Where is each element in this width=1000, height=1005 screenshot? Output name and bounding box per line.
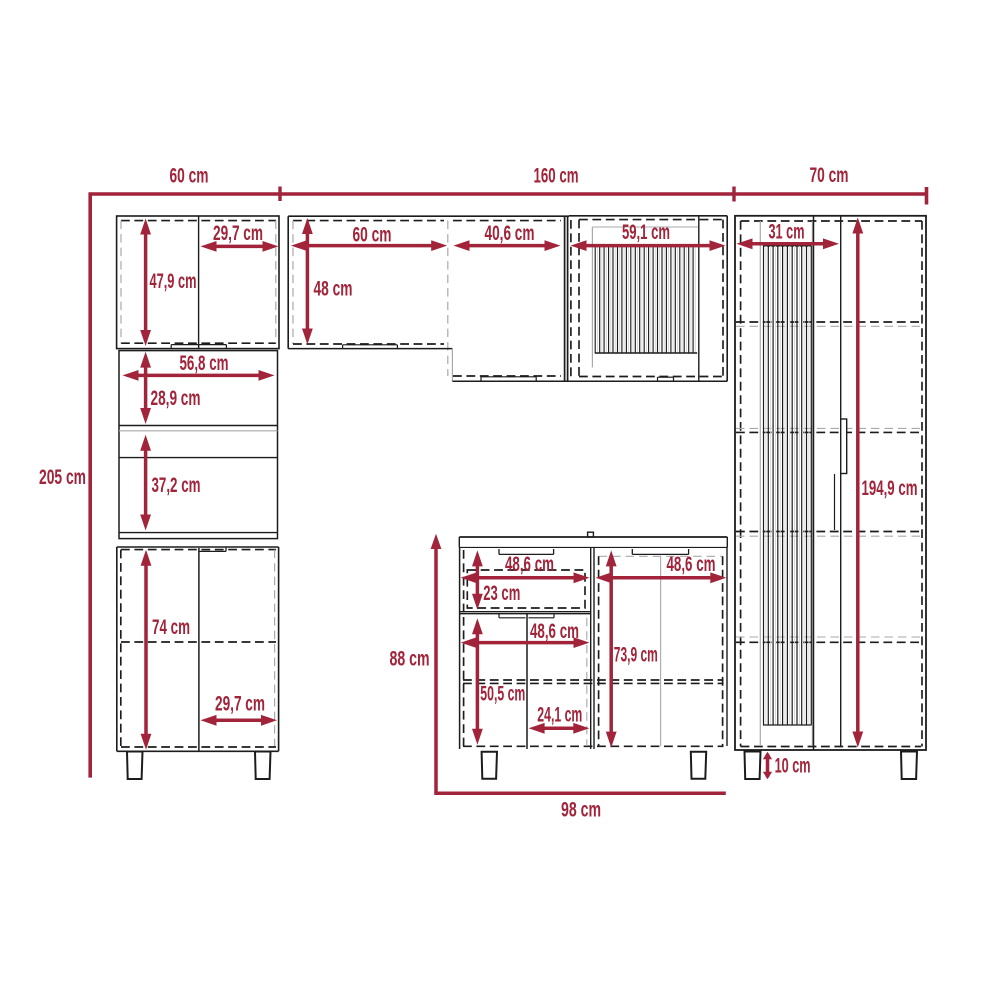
svg-text:40,6 cm: 40,6 cm: [485, 222, 535, 245]
svg-text:31 cm: 31 cm: [769, 221, 805, 244]
svg-text:28,9 cm: 28,9 cm: [151, 387, 201, 410]
svg-text:29,7 cm: 29,7 cm: [215, 693, 265, 716]
svg-text:10 cm: 10 cm: [775, 755, 811, 778]
svg-text:194,9 cm: 194,9 cm: [862, 477, 918, 500]
svg-text:60 cm: 60 cm: [170, 165, 209, 188]
svg-text:88 cm: 88 cm: [390, 648, 430, 671]
svg-text:48 cm: 48 cm: [314, 278, 353, 301]
svg-text:74 cm: 74 cm: [152, 616, 190, 639]
svg-text:73,9 cm: 73,9 cm: [614, 644, 658, 667]
svg-text:56,8 cm: 56,8 cm: [180, 352, 229, 375]
svg-text:37,2 cm: 37,2 cm: [152, 474, 201, 497]
svg-text:205 cm: 205 cm: [39, 466, 86, 489]
svg-text:48,6 cm: 48,6 cm: [530, 620, 579, 643]
svg-text:47,9 cm: 47,9 cm: [150, 270, 197, 293]
svg-text:24,1 cm: 24,1 cm: [537, 704, 582, 727]
svg-text:23 cm: 23 cm: [483, 582, 520, 605]
svg-text:160 cm: 160 cm: [534, 165, 579, 188]
svg-text:48,6 cm: 48,6 cm: [505, 553, 554, 576]
svg-text:60 cm: 60 cm: [353, 224, 392, 247]
svg-text:50,5 cm: 50,5 cm: [480, 683, 525, 706]
svg-text:70 cm: 70 cm: [810, 164, 849, 187]
svg-text:59,1 cm: 59,1 cm: [622, 221, 670, 244]
svg-text:29,7 cm: 29,7 cm: [213, 222, 263, 245]
svg-text:98 cm: 98 cm: [561, 799, 601, 822]
svg-text:48,6 cm: 48,6 cm: [667, 553, 716, 576]
